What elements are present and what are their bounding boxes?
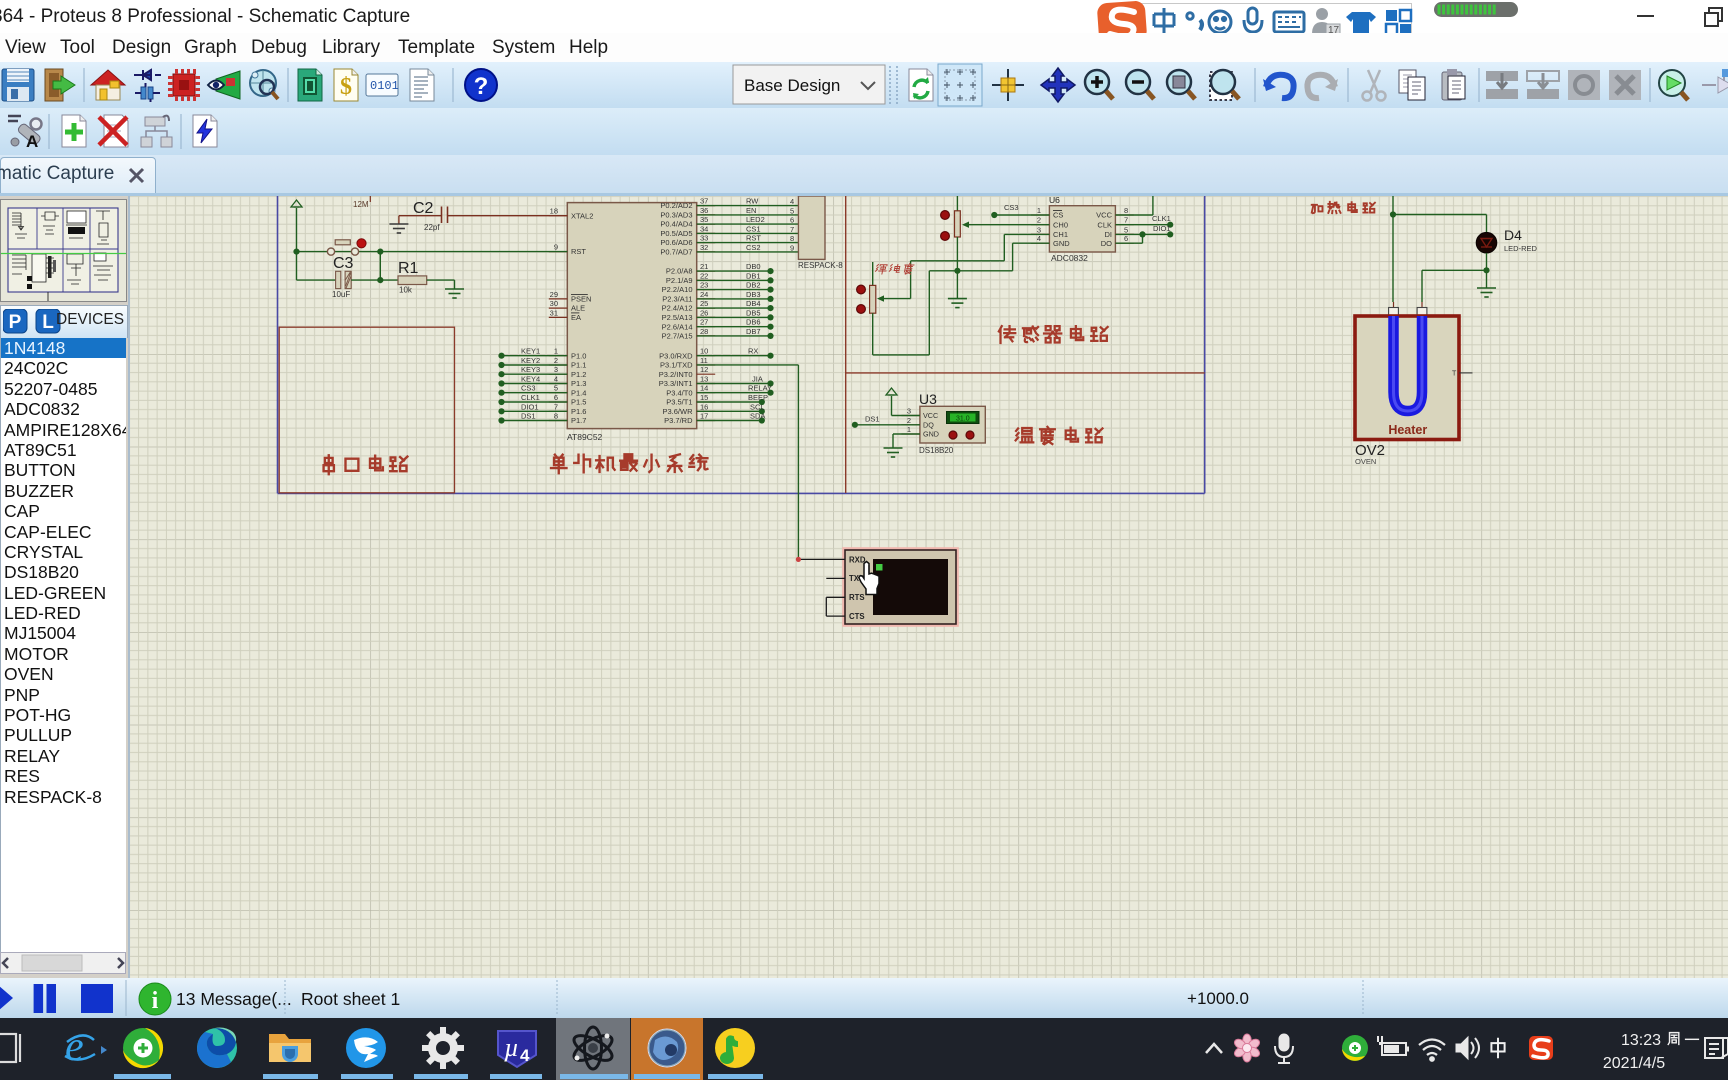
svg-text:1: 1 xyxy=(1037,206,1041,215)
svg-text:RST: RST xyxy=(746,234,761,243)
svg-text:31: 31 xyxy=(550,308,558,317)
svg-text:6: 6 xyxy=(554,393,558,402)
svg-text:CS3: CS3 xyxy=(521,384,536,393)
svg-text:DB5: DB5 xyxy=(746,308,761,317)
svg-text:34: 34 xyxy=(700,224,708,233)
svg-text:18: 18 xyxy=(550,207,558,216)
svg-text:DO: DO xyxy=(1101,239,1112,248)
svg-text:4: 4 xyxy=(790,197,794,206)
svg-text:17: 17 xyxy=(700,412,708,421)
svg-text:1: 1 xyxy=(907,425,911,434)
svg-text:11: 11 xyxy=(700,356,708,365)
svg-text:KEY2: KEY2 xyxy=(521,356,540,365)
svg-text:21: 21 xyxy=(700,262,708,271)
svg-text:RST: RST xyxy=(571,247,586,256)
svg-text:RTS: RTS xyxy=(849,593,865,602)
svg-text:DIO1: DIO1 xyxy=(521,402,539,411)
svg-text:P3.6/WR: P3.6/WR xyxy=(662,407,693,416)
svg-text:EA: EA xyxy=(571,313,581,322)
svg-text:3: 3 xyxy=(907,407,911,416)
svg-text:VCC: VCC xyxy=(923,411,938,420)
svg-text:P: P xyxy=(9,312,22,333)
svg-text:12: 12 xyxy=(700,365,708,374)
svg-text:P0.6/AD6: P0.6/AD6 xyxy=(660,238,692,247)
svg-text:RESPACK-8: RESPACK-8 xyxy=(798,261,843,270)
svg-text:?: ? xyxy=(474,73,489,100)
svg-text:P1.3: P1.3 xyxy=(571,379,586,388)
svg-text:CTS: CTS xyxy=(849,612,865,621)
svg-text:P2.2/A10: P2.2/A10 xyxy=(662,285,693,294)
svg-text:7: 7 xyxy=(554,402,558,411)
svg-text:P3.7/RD: P3.7/RD xyxy=(664,416,693,425)
svg-text:6: 6 xyxy=(790,216,794,225)
svg-text:L: L xyxy=(42,312,54,333)
svg-text:e: e xyxy=(65,1024,84,1070)
svg-text:ALE: ALE xyxy=(571,304,585,313)
svg-text:Heater: Heater xyxy=(1388,423,1427,437)
svg-text:DI: DI xyxy=(1105,230,1113,239)
svg-text:P3.4/T0: P3.4/T0 xyxy=(666,388,692,397)
svg-text:CH0: CH0 xyxy=(1053,220,1068,229)
svg-text:2: 2 xyxy=(1037,216,1041,225)
svg-text:P2.4/A12: P2.4/A12 xyxy=(662,304,693,313)
svg-text:RELAY: RELAY xyxy=(748,384,772,393)
svg-text:CS1: CS1 xyxy=(746,224,761,233)
svg-text:DS1: DS1 xyxy=(865,415,880,424)
svg-text:RXD: RXD xyxy=(849,555,866,564)
svg-text:27: 27 xyxy=(700,318,708,327)
svg-text:P3.2/INT0: P3.2/INT0 xyxy=(659,370,693,379)
svg-text:$: $ xyxy=(340,74,352,100)
svg-text:P3.0/RXD: P3.0/RXD xyxy=(659,351,693,360)
svg-text:4: 4 xyxy=(1037,234,1041,243)
svg-text:26: 26 xyxy=(700,308,708,317)
svg-text:P0.2/AD2: P0.2/AD2 xyxy=(660,201,692,210)
svg-text:DB2: DB2 xyxy=(746,281,761,290)
svg-text:XTAL2: XTAL2 xyxy=(571,211,593,220)
svg-text:AT89C52: AT89C52 xyxy=(567,432,603,442)
svg-text:A: A xyxy=(26,132,38,151)
svg-text:Base Design: Base Design xyxy=(744,76,840,95)
svg-text:CH1: CH1 xyxy=(1053,230,1068,239)
svg-text:DIO1: DIO1 xyxy=(1153,224,1171,233)
svg-text:7: 7 xyxy=(790,225,794,234)
svg-text:8: 8 xyxy=(1124,206,1128,215)
svg-text:RW: RW xyxy=(746,197,759,206)
svg-text:16: 16 xyxy=(700,402,708,411)
svg-text:CS3: CS3 xyxy=(1004,203,1019,212)
svg-text:5: 5 xyxy=(790,206,794,215)
svg-text:P1.7: P1.7 xyxy=(571,416,586,425)
svg-text:13:23: 13:23 xyxy=(1621,1032,1661,1049)
svg-text:3: 3 xyxy=(554,365,558,374)
svg-text:SDA: SDA xyxy=(750,412,765,421)
svg-text:10uF: 10uF xyxy=(332,290,350,299)
svg-text:P2.5/A13: P2.5/A13 xyxy=(662,313,693,322)
svg-text:KEY1: KEY1 xyxy=(521,347,540,356)
svg-text:P2.3/A11: P2.3/A11 xyxy=(662,295,692,304)
svg-text:SCL: SCL xyxy=(750,402,765,411)
svg-text:8: 8 xyxy=(790,234,794,243)
svg-text:KEY4: KEY4 xyxy=(521,375,540,384)
svg-text:CS2: CS2 xyxy=(746,243,761,252)
svg-text:28: 28 xyxy=(700,327,708,336)
svg-text:BEEP: BEEP xyxy=(748,393,768,402)
svg-text:P1.1: P1.1 xyxy=(571,361,586,370)
svg-text:9: 9 xyxy=(554,243,558,252)
svg-text:DQ: DQ xyxy=(923,420,934,429)
svg-text:P2.1/A9: P2.1/A9 xyxy=(666,276,693,285)
svg-text:30: 30 xyxy=(550,299,558,308)
svg-text:D4: D4 xyxy=(1504,227,1522,243)
svg-text:µ: µ xyxy=(504,1033,519,1062)
svg-text:7: 7 xyxy=(1124,216,1128,225)
svg-text:C2: C2 xyxy=(413,200,434,217)
svg-text:OVEN: OVEN xyxy=(1355,457,1376,466)
svg-text:ADC0832: ADC0832 xyxy=(1051,253,1088,263)
svg-text:LED2: LED2 xyxy=(746,215,765,224)
svg-text:P2.7/A15: P2.7/A15 xyxy=(662,332,693,341)
svg-text:5: 5 xyxy=(1124,225,1128,234)
svg-text:22pf: 22pf xyxy=(424,223,440,232)
svg-text:DS18B20: DS18B20 xyxy=(919,446,954,455)
svg-text:14: 14 xyxy=(700,384,708,393)
svg-text:0101: 0101 xyxy=(370,79,399,93)
svg-text:35: 35 xyxy=(700,215,708,224)
svg-text:5: 5 xyxy=(554,384,558,393)
svg-text:P1.5: P1.5 xyxy=(571,398,586,407)
svg-text:1: 1 xyxy=(554,347,558,356)
svg-text:U3: U3 xyxy=(919,391,937,407)
svg-text:LED-RED: LED-RED xyxy=(1504,244,1538,253)
svg-text:P3.1/TXD: P3.1/TXD xyxy=(660,361,693,370)
svg-text:DB6: DB6 xyxy=(746,318,761,327)
svg-text:13: 13 xyxy=(700,375,708,384)
svg-text:DS1: DS1 xyxy=(521,412,536,421)
svg-text:10: 10 xyxy=(700,347,708,356)
svg-text:33: 33 xyxy=(700,234,708,243)
svg-text:JIA: JIA xyxy=(752,375,763,384)
svg-text:P1.0: P1.0 xyxy=(571,351,586,360)
svg-text:U6: U6 xyxy=(1049,196,1060,205)
svg-text:P2.6/A14: P2.6/A14 xyxy=(662,322,693,331)
svg-text:R1: R1 xyxy=(398,260,419,277)
svg-text:6: 6 xyxy=(1124,234,1128,243)
svg-text:13 Message(...: 13 Message(... xyxy=(176,989,292,1009)
svg-text:CLK1: CLK1 xyxy=(521,393,540,402)
svg-text:T: T xyxy=(1452,371,1457,378)
svg-text:8: 8 xyxy=(554,412,558,421)
svg-text:PSEN: PSEN xyxy=(571,295,591,304)
svg-text:29: 29 xyxy=(550,290,558,299)
svg-text:10k: 10k xyxy=(399,286,413,295)
svg-text:GND: GND xyxy=(923,430,939,439)
svg-text:31.0: 31.0 xyxy=(956,415,970,422)
svg-text:2: 2 xyxy=(554,356,558,365)
svg-text:P1.2: P1.2 xyxy=(571,370,586,379)
svg-text:DB3: DB3 xyxy=(746,290,761,299)
svg-text:23: 23 xyxy=(700,281,708,290)
svg-text:25: 25 xyxy=(700,299,708,308)
svg-text:+1000.0: +1000.0 xyxy=(1187,989,1249,1008)
svg-text:P1.6: P1.6 xyxy=(571,407,586,416)
svg-text:15: 15 xyxy=(700,393,708,402)
svg-text:4: 4 xyxy=(520,1046,530,1065)
svg-text:22: 22 xyxy=(700,271,708,280)
svg-text:36: 36 xyxy=(700,206,708,215)
svg-text:P0.5/AD5: P0.5/AD5 xyxy=(660,229,692,238)
svg-text:P1.4: P1.4 xyxy=(571,388,586,397)
svg-text:EN: EN xyxy=(746,206,756,215)
svg-text:37: 37 xyxy=(700,197,708,206)
svg-text:24: 24 xyxy=(700,290,708,299)
svg-text:4: 4 xyxy=(554,375,558,384)
svg-text:12M: 12M xyxy=(353,200,369,209)
svg-text:P0.4/AD4: P0.4/AD4 xyxy=(660,220,692,229)
svg-text:i: i xyxy=(152,988,159,1014)
svg-text:KEY3: KEY3 xyxy=(521,365,540,374)
svg-text:CLK1: CLK1 xyxy=(1152,214,1171,223)
svg-text:DB0: DB0 xyxy=(746,262,761,271)
svg-text:P0.3/AD3: P0.3/AD3 xyxy=(660,211,692,220)
svg-text:32: 32 xyxy=(700,243,708,252)
svg-text:2021/4/5: 2021/4/5 xyxy=(1603,1055,1665,1072)
svg-text:P3.3/INT1: P3.3/INT1 xyxy=(659,379,693,388)
svg-text:2: 2 xyxy=(907,416,911,425)
svg-text:P2.0/A8: P2.0/A8 xyxy=(666,267,693,276)
svg-text:P3.5/T1: P3.5/T1 xyxy=(666,398,692,407)
svg-text:GND: GND xyxy=(1053,239,1070,248)
svg-text:DB7: DB7 xyxy=(746,327,761,336)
svg-text:Root sheet 1: Root sheet 1 xyxy=(301,989,400,1009)
svg-text:CS: CS xyxy=(1053,211,1063,220)
svg-text:3: 3 xyxy=(1037,225,1041,234)
svg-text:9: 9 xyxy=(790,243,794,252)
svg-text:DB4: DB4 xyxy=(746,299,761,308)
svg-text:CLK: CLK xyxy=(1097,220,1112,229)
svg-text:RX: RX xyxy=(748,347,758,356)
svg-text:P0.7/AD7: P0.7/AD7 xyxy=(660,248,692,257)
svg-text:DB1: DB1 xyxy=(746,271,761,280)
svg-text:VCC: VCC xyxy=(1096,211,1112,220)
svg-text:C3: C3 xyxy=(333,255,354,272)
